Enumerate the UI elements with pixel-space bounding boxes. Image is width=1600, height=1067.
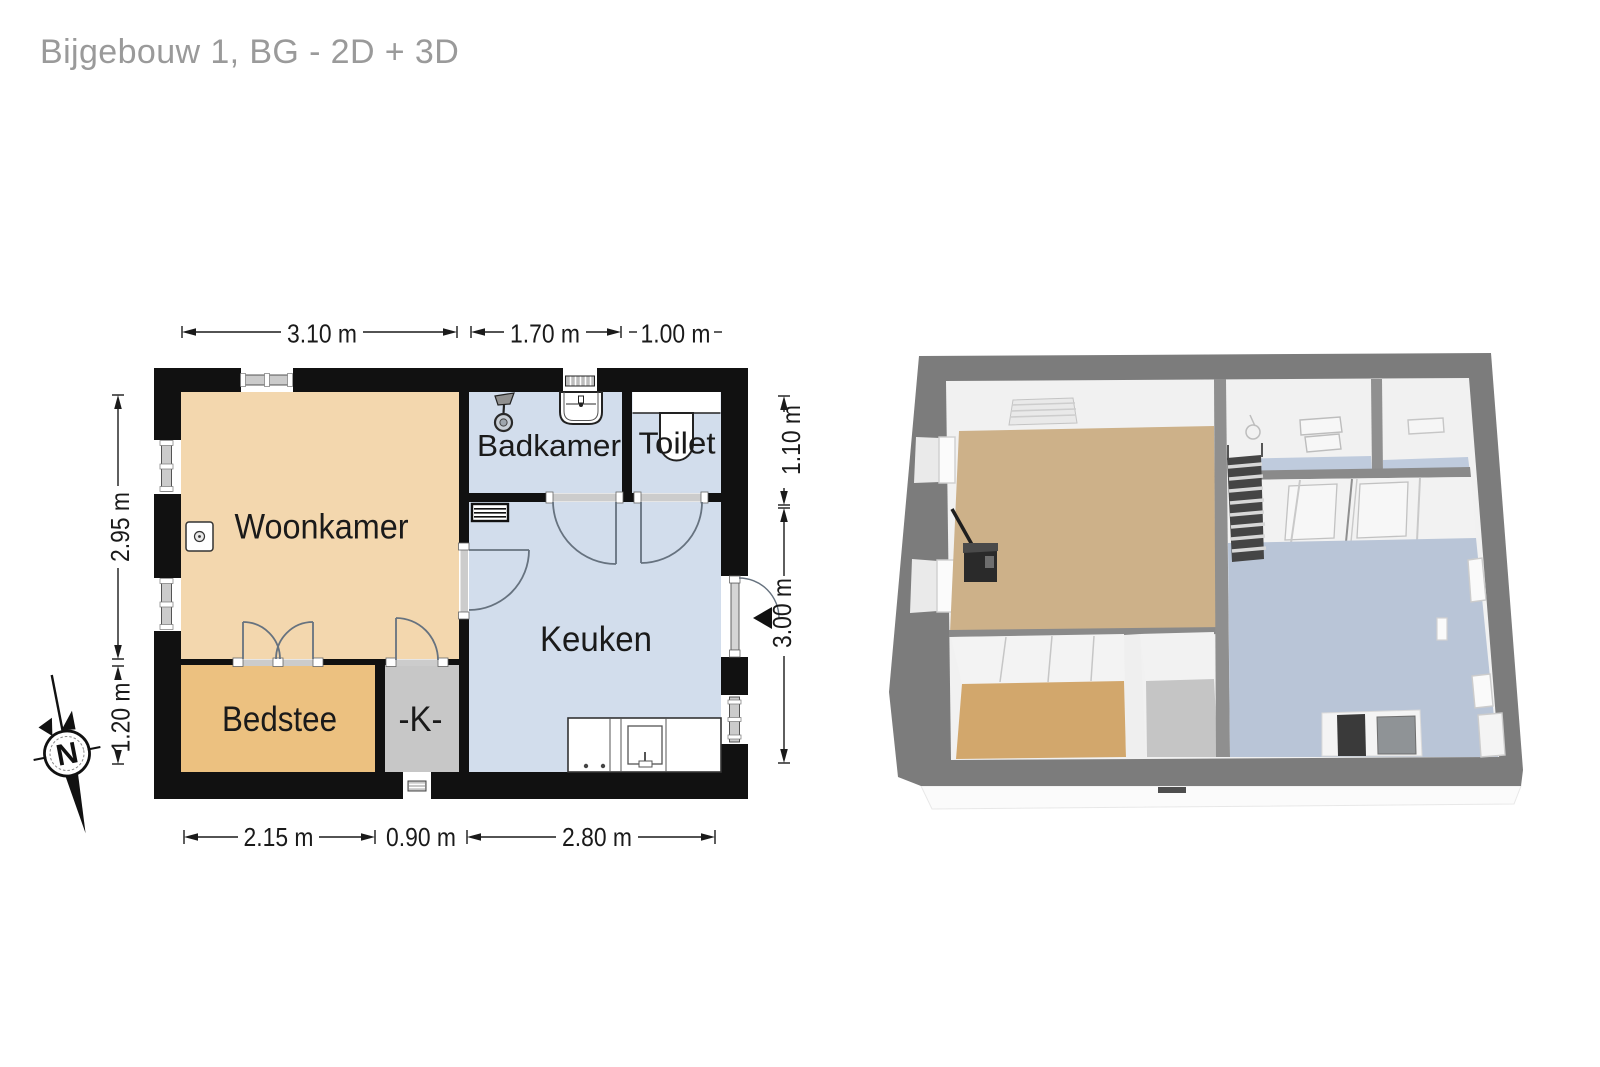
svg-text:1.00 m: 1.00 m xyxy=(641,319,711,349)
svg-text:2.15 m: 2.15 m xyxy=(244,822,314,852)
svg-text:Keuken: Keuken xyxy=(540,620,652,659)
svg-text:Toilet: Toilet xyxy=(639,426,716,461)
svg-text:Woonkamer: Woonkamer xyxy=(235,508,409,547)
svg-text:Badkamer: Badkamer xyxy=(477,428,621,463)
svg-text:1.20 m: 1.20 m xyxy=(106,683,136,753)
svg-text:1.10 m: 1.10 m xyxy=(776,405,806,475)
svg-text:2.80 m: 2.80 m xyxy=(562,822,632,852)
svg-text:2.95 m: 2.95 m xyxy=(105,492,135,562)
svg-text:0.90 m: 0.90 m xyxy=(386,822,456,852)
svg-text:-K-: -K- xyxy=(399,700,443,739)
svg-text:Bijgebouw 1, BG - 2D + 3D: Bijgebouw 1, BG - 2D + 3D xyxy=(40,33,459,71)
svg-text:1.70 m: 1.70 m xyxy=(510,319,580,349)
svg-text:3.10 m: 3.10 m xyxy=(287,319,357,349)
svg-text:Bedstee: Bedstee xyxy=(222,700,337,739)
svg-text:3.00 m: 3.00 m xyxy=(767,578,797,648)
